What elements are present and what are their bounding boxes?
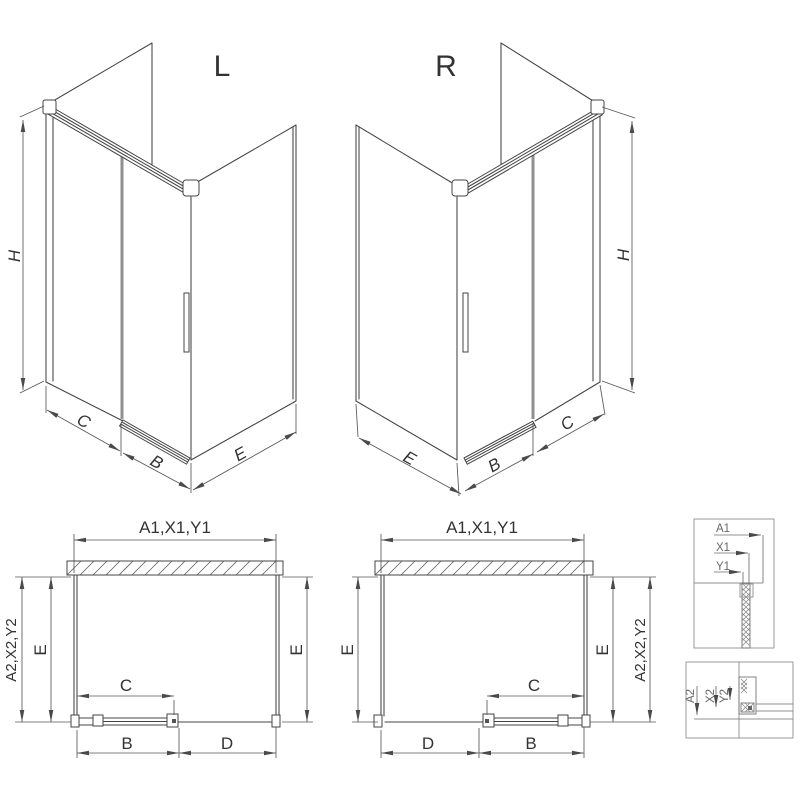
detail-bottom-track-hatch bbox=[741, 703, 754, 712]
plan-l-door-track bbox=[71, 714, 280, 727]
iso-r-left-wall-glass bbox=[356, 125, 457, 460]
iso-l-dim-c: C bbox=[46, 386, 121, 456]
dim-label-h-right: H bbox=[614, 248, 633, 261]
dim-label-a2-left: A2,X2,Y2 bbox=[3, 618, 20, 681]
dim-label-c-left: C bbox=[74, 410, 95, 433]
drawing-canvas: L bbox=[0, 0, 800, 800]
iso-l-dim-e: E bbox=[193, 404, 296, 490]
dim-label-d-plan-left: D bbox=[221, 734, 233, 753]
iso-l-dim-height: H bbox=[5, 106, 44, 393]
variant-label-left: L bbox=[214, 50, 231, 83]
detail-label-a2: A2 bbox=[685, 689, 697, 703]
plan-r-side-panels bbox=[381, 575, 587, 723]
detail-wall-profile-top: A1 X1 Y1 bbox=[694, 519, 774, 648]
iso-r-door-handle bbox=[463, 293, 468, 352]
iso-l-corner-bracket-right bbox=[183, 180, 199, 196]
plan-r-dim-depths: E E A2,X2,Y2 bbox=[338, 577, 656, 722]
iso-r-dim-c: C bbox=[537, 385, 605, 452]
detail-top-glass-strip bbox=[742, 583, 750, 648]
plan-r-dim-c: C bbox=[487, 676, 584, 715]
plan-l-dim-b-d: B D bbox=[77, 727, 276, 758]
detail-bottom-glass-hatch bbox=[741, 679, 747, 693]
detail-label-x2: X2 bbox=[705, 689, 717, 703]
plan-r-door-track bbox=[374, 714, 590, 727]
dim-label-e-inner-left: E bbox=[31, 644, 50, 655]
detail-label-a1: A1 bbox=[716, 523, 730, 535]
detail-top-box bbox=[694, 519, 774, 648]
dim-label-a1-left: A1,X1,Y1 bbox=[139, 518, 211, 537]
detail-bottom-box bbox=[686, 662, 793, 738]
dim-label-b-left: B bbox=[147, 451, 166, 473]
iso-view-right: R bbox=[356, 43, 635, 496]
dim-label-e-right: E bbox=[400, 447, 420, 469]
dim-label-c-right: C bbox=[557, 412, 578, 435]
detail-bottom-profile bbox=[739, 677, 756, 714]
detail-label-y2: Y2 bbox=[719, 689, 731, 703]
detail-floor-profile-bottom: A2 X2 Y2 bbox=[685, 662, 793, 738]
dim-label-c-plan-right: C bbox=[528, 676, 540, 695]
iso-l-top-rail bbox=[46, 106, 191, 195]
detail-top-callouts: A1 X1 Y1 bbox=[714, 523, 761, 584]
dim-label-c-plan-left: C bbox=[120, 676, 132, 695]
plan-r-dim-d-b: D B bbox=[381, 727, 584, 758]
iso-l-right-wall-glass bbox=[191, 125, 296, 460]
plan-l-side-panels bbox=[74, 575, 279, 723]
dim-label-h-left: H bbox=[5, 249, 24, 262]
plan-view-right: A1,X1,Y1 C D B E E A2,X2,Y2 bbox=[338, 518, 656, 758]
dim-label-e-inner-plan-right: E bbox=[593, 644, 612, 655]
iso-l-door-handle bbox=[184, 293, 189, 352]
dim-label-a2-right: A2,X2,Y2 bbox=[632, 618, 649, 681]
detail-label-y1: Y1 bbox=[716, 561, 730, 573]
plan-l-dim-depths: A2,X2,Y2 E E bbox=[3, 577, 313, 722]
iso-r-dim-e: E bbox=[356, 404, 461, 494]
plan-l-dim-c: C bbox=[77, 676, 174, 715]
detail-bottom-callouts: A2 X2 Y2 bbox=[685, 686, 731, 715]
detail-top-glass-hatch bbox=[742, 583, 750, 646]
shower-enclosure-technical-drawing: L bbox=[0, 0, 800, 800]
dim-label-e-left: E bbox=[231, 443, 251, 465]
variant-label-right: R bbox=[435, 50, 457, 83]
iso-l-left-wall-glass bbox=[46, 43, 152, 382]
iso-r-right-wall-glass bbox=[501, 43, 600, 382]
iso-l-corner-bracket-top-left bbox=[43, 100, 56, 114]
dim-label-b-plan-left: B bbox=[121, 734, 132, 753]
iso-r-corner-bracket-left bbox=[452, 180, 468, 196]
dim-label-e-left-plan-right: E bbox=[338, 644, 357, 655]
iso-r-dim-height: H bbox=[602, 107, 635, 393]
iso-r-bottom-track bbox=[464, 421, 536, 464]
iso-view-left: L bbox=[5, 43, 296, 493]
dim-label-b-right: B bbox=[485, 454, 504, 476]
detail-label-x1: X1 bbox=[716, 542, 730, 554]
plan-view-left: A1,X1,Y1 C B D A2,X2,Y2 E bbox=[3, 518, 313, 758]
detail-bottom-track-profile bbox=[741, 703, 754, 712]
dim-label-b-plan-right: B bbox=[525, 734, 536, 753]
detail-bottom-dot bbox=[748, 706, 752, 710]
dim-label-d-plan-right: D bbox=[422, 734, 434, 753]
dim-label-e-right-plan-left: E bbox=[287, 644, 306, 655]
dim-label-a1-right: A1,X1,Y1 bbox=[446, 518, 518, 537]
